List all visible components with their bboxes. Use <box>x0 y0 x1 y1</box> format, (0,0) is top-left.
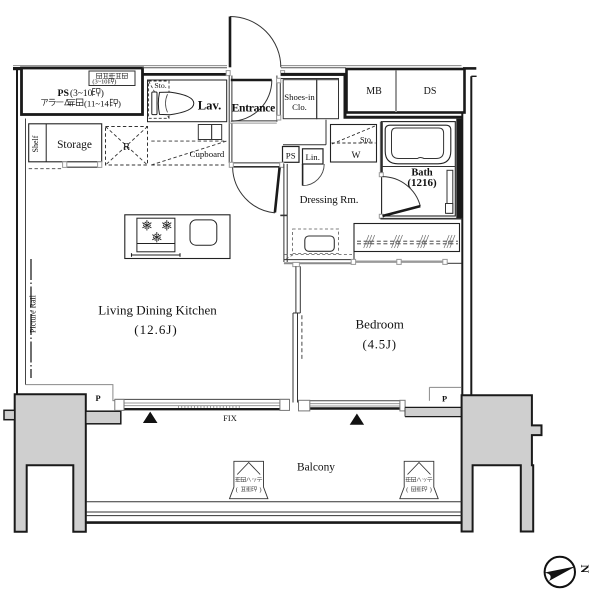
svg-text:Entrance: Entrance <box>232 102 275 115</box>
svg-text:(12.6J): (12.6J) <box>134 322 177 337</box>
svg-text:): ) <box>260 486 262 493</box>
svg-text:Dressing Rm.: Dressing Rm. <box>300 194 359 206</box>
svg-text:(3~10: (3~10 <box>92 79 107 86</box>
svg-text:(11~14: (11~14 <box>84 98 110 108</box>
svg-text:Bedroom: Bedroom <box>356 317 404 332</box>
svg-text:Cupboard: Cupboard <box>190 149 225 159</box>
svg-text:P: P <box>442 394 447 403</box>
svg-text:(4.5J): (4.5J) <box>363 338 397 352</box>
svg-text:Shoes-in: Shoes-in <box>284 92 315 102</box>
svg-text:): ) <box>118 98 121 108</box>
svg-text:N: N <box>578 564 592 573</box>
svg-text:DS: DS <box>424 86 437 97</box>
svg-text:Lav.: Lav. <box>198 98 221 112</box>
svg-text:P: P <box>95 394 100 403</box>
svg-text:Shelf: Shelf <box>31 135 40 152</box>
svg-text:Sto.: Sto. <box>154 81 166 90</box>
svg-text:(: ( <box>236 486 238 493</box>
svg-text:FIX: FIX <box>223 414 237 423</box>
svg-text:(1216): (1216) <box>407 177 437 189</box>
svg-text:(: ( <box>406 486 408 493</box>
svg-text:R: R <box>123 142 130 153</box>
svg-text:PS: PS <box>58 88 70 99</box>
svg-text:): ) <box>114 79 116 86</box>
svg-text:W: W <box>352 151 361 161</box>
svg-text:PS: PS <box>286 150 296 160</box>
svg-text:Living Dining Kitchen: Living Dining Kitchen <box>98 303 217 318</box>
svg-text:Balcony: Balcony <box>297 462 335 474</box>
svg-text:Storage: Storage <box>57 139 92 151</box>
svg-text:Picture Rail: Picture Rail <box>29 294 38 333</box>
svg-text:Sto.: Sto. <box>360 135 373 144</box>
svg-text:Lin.: Lin. <box>305 152 319 162</box>
svg-text:): ) <box>430 486 432 493</box>
svg-text:MB: MB <box>366 86 382 97</box>
svg-text:Clo.: Clo. <box>292 102 307 112</box>
